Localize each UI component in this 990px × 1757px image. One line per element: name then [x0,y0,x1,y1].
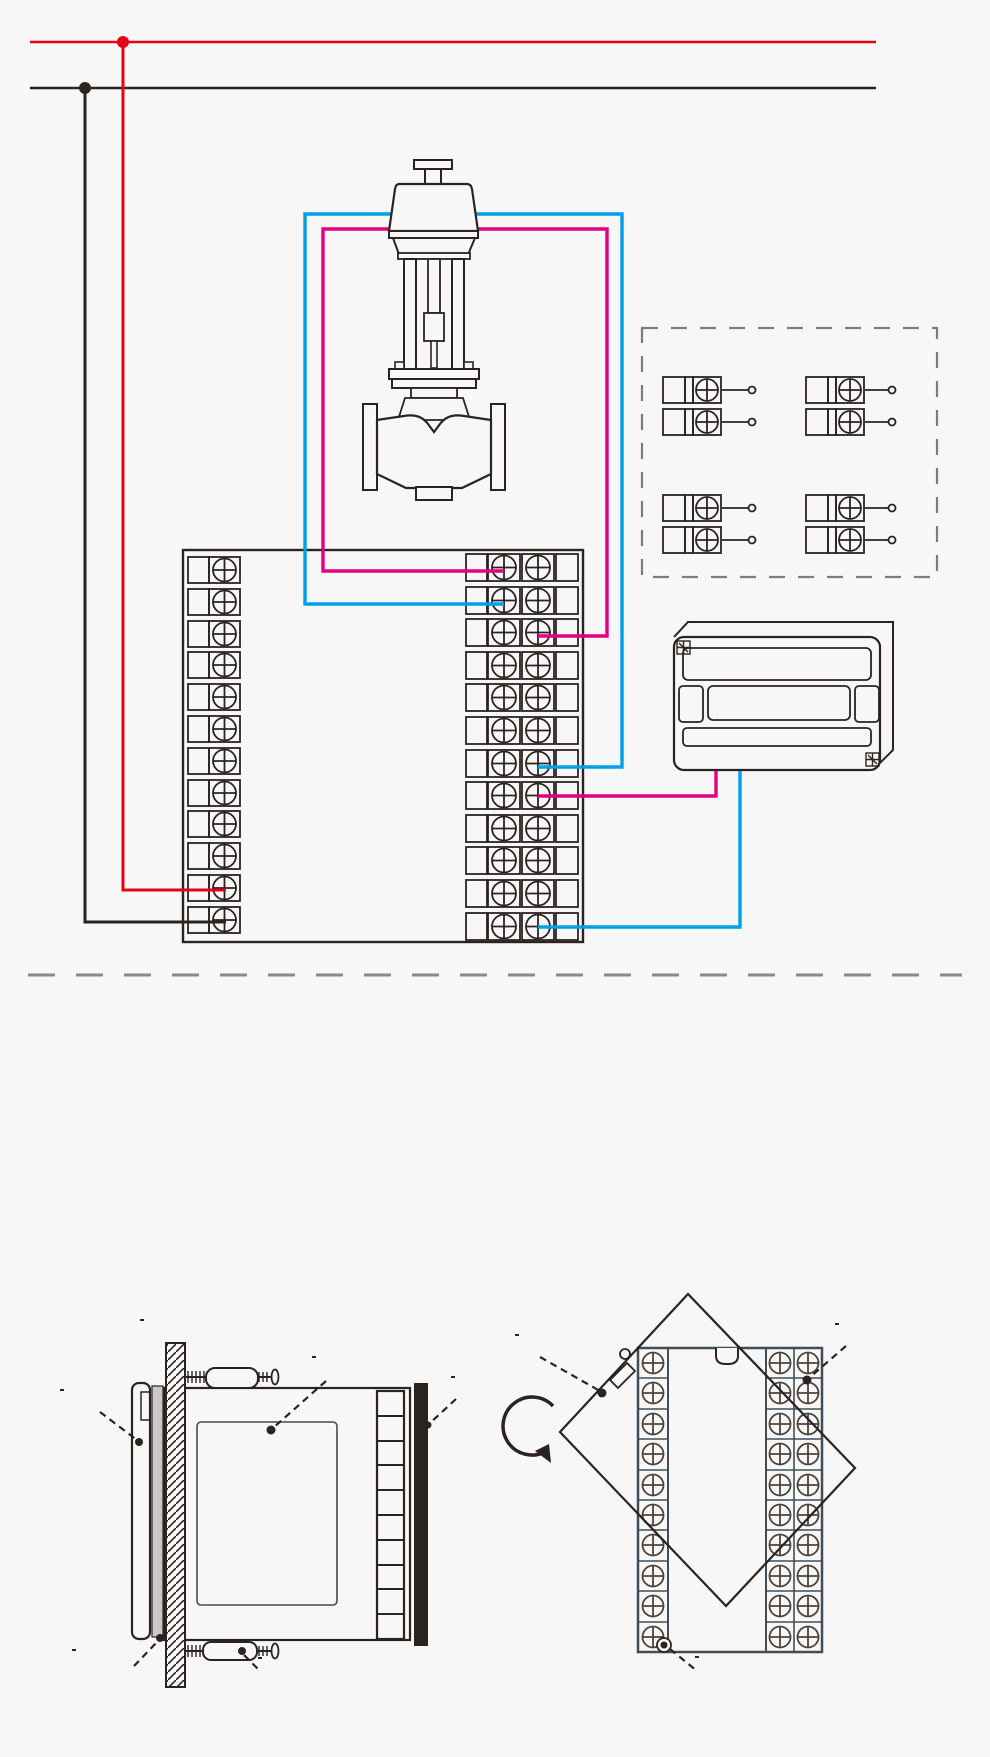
terminal-15 [556,618,578,647]
bracket-label [258,1654,262,1659]
diagram-canvas [0,0,990,1757]
terminal-6 [187,715,209,743]
terminal-34 [465,846,487,875]
terminal-21 [556,814,578,843]
terminal-30 [465,716,487,745]
terminal-13 [556,553,578,582]
info-terminal-12 [805,526,829,554]
terminal-8 [187,779,209,807]
wiring-diagram-page [0,0,990,1757]
terminal-12 [187,906,209,934]
terminal-9 [187,810,209,838]
terminal-27 [465,618,487,647]
panel-board-label [140,1316,144,1321]
terminal-26 [465,586,487,615]
terminal-29 [465,683,487,712]
info-terminal-19 [662,408,686,436]
terminal-36 [465,912,487,941]
terminal-19 [556,749,578,778]
front-bezel [132,1383,150,1639]
terminal-24 [556,912,578,941]
info-terminal-20 [662,494,686,522]
control-valve-drawing [363,160,505,500]
info-terminal-15 [662,376,686,404]
terminal-28 [465,651,487,680]
terminal-3 [187,620,209,648]
main-terminal-block [183,550,583,942]
terminal-35 [465,879,487,908]
terminal-7 [187,747,209,775]
terminal-22 [556,846,578,875]
terminal-14 [556,586,578,615]
mounting-bracket [203,1642,257,1660]
terminal-11 [187,874,209,902]
terminals-label [835,1320,839,1325]
gasket-label [72,1646,76,1651]
power-lines [30,36,876,94]
terminal-10 [187,842,209,870]
info-terminal-26 [805,408,829,436]
info-terminal-25 [805,376,829,404]
terminal-cover-label-side [451,1373,455,1378]
terminal-33 [465,814,487,843]
info-terminal-11 [805,494,829,522]
terminal-23 [556,879,578,908]
terminal-18 [556,716,578,745]
terminal-25 [465,553,487,582]
terminal-1 [187,556,209,584]
terminal-16 [556,651,578,680]
terminal-17 [556,683,578,712]
plc-box [674,622,893,770]
terminal-32 [465,781,487,810]
screw-hole-label [695,1653,699,1658]
terminal-cover-label-back [515,1331,519,1336]
terminal-info-box [642,328,937,577]
back-view-drawing [503,1294,855,1671]
terminal-31 [465,749,487,778]
terminal-5 [187,683,209,711]
terminal-2 [187,588,209,616]
info-terminal-24 [662,526,686,554]
panel-wall [166,1343,185,1687]
side-view-drawing [100,1343,456,1687]
sticker-label [312,1353,316,1358]
terminal-20 [556,781,578,810]
front-panel-label [60,1386,64,1391]
gasket-strip [152,1386,163,1637]
terminal-4 [187,651,209,679]
